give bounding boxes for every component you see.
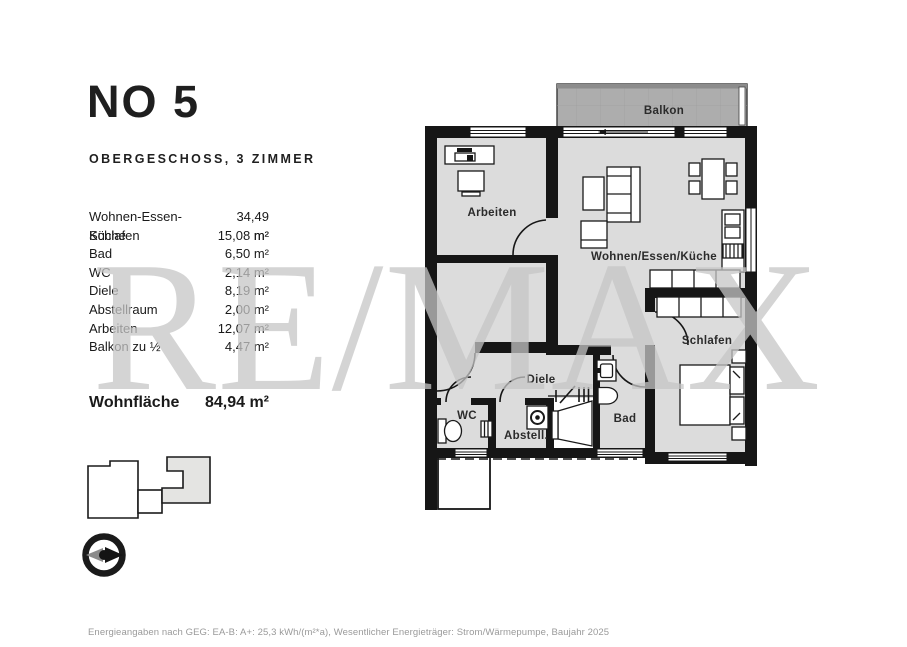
wall-left: [425, 126, 437, 456]
room-name: WC: [89, 264, 111, 283]
label-diele: Diele: [527, 374, 556, 386]
room-name: Schlafen: [89, 227, 140, 246]
wall-arbeiten-bottom: [437, 255, 546, 263]
room-name: Diele: [89, 282, 119, 301]
stairwell-outline: [438, 455, 490, 509]
room-area: 4,47 m²: [225, 338, 269, 357]
radiator-icon: [481, 421, 492, 437]
window-schlafen: [668, 453, 727, 461]
bad-toilet-icon: [598, 388, 618, 405]
room-name: Arbeiten: [89, 320, 137, 339]
wall-arbeiten-lower: [546, 255, 558, 353]
room-area: 2,00 m²: [225, 301, 269, 320]
wall-h5-c: [525, 398, 546, 405]
label-schlafen: Schlafen: [682, 335, 732, 347]
total-value: 84,94 m²: [205, 394, 269, 413]
wall-h5-a: [437, 398, 441, 405]
nightstand-icon: [732, 350, 746, 363]
nightstand-2-icon: [732, 427, 746, 440]
room-name: Balkon zu ½: [89, 338, 161, 357]
window-balcony-2: [684, 127, 727, 137]
label-wc: WC: [457, 410, 477, 422]
room-area: 6,50 m²: [225, 245, 269, 264]
label-abstell: Abstell.: [504, 430, 548, 442]
room-name: Abstellraum: [89, 301, 158, 320]
room-name: Bad: [89, 245, 112, 264]
area-table-row: WC 2,14 m²: [89, 264, 269, 283]
room-area: 15,08 m²: [218, 227, 269, 246]
area-table-row: Schlafen 15,08 m²: [89, 227, 269, 246]
area-table-row: Arbeiten 12,07 m²: [89, 320, 269, 339]
armchair-2-icon: [581, 221, 607, 248]
window-balcony-door: [563, 127, 675, 137]
total-area-row: Wohnfläche 84,94 m²: [89, 394, 269, 413]
desk-icon: [445, 146, 494, 164]
label-arbeiten: Arbeiten: [467, 207, 516, 219]
wall-schlafen-left-a: [645, 288, 655, 312]
wall-schlafen-left-b: [645, 345, 655, 456]
wardrobe-icon: [657, 297, 741, 317]
window-wc: [455, 449, 487, 457]
info-panel: NO 5 OBERGESCHOSS, 3 ZIMMER Wohnen-Essen…: [0, 0, 330, 647]
window-kitchen-right: [746, 208, 756, 272]
floorplan-sheet: NO 5 OBERGESCHOSS, 3 ZIMMER Wohnen-Essen…: [0, 0, 907, 647]
balcony-divider: [739, 87, 745, 125]
area-table-row: Wohnen-Essen-Küche 34,49 m²: [89, 208, 269, 227]
page-title: NO 5: [87, 76, 200, 128]
label-bad: Bad: [614, 413, 637, 425]
page-subtitle: OBERGESCHOSS, 3 ZIMMER: [89, 152, 315, 166]
armchair-icon: [583, 177, 604, 210]
area-table-row: Bad 6,50 m²: [89, 245, 269, 264]
room-area: 2,14 m²: [225, 264, 269, 283]
wc-toilet-icon: [438, 419, 462, 443]
total-label: Wohnfläche: [89, 394, 179, 413]
label-wohnen: Wohnen/Essen/Küche: [591, 251, 717, 263]
bathroom-sink-icon: [597, 360, 616, 381]
wall-diele-top: [475, 342, 546, 353]
area-table-row: Diele 8,19 m²: [89, 282, 269, 301]
label-balkon: Balkon: [644, 105, 684, 117]
area-table-row: Abstellraum 2,00 m²: [89, 301, 269, 320]
washing-machine-icon: [527, 406, 548, 429]
wall-left-lower: [425, 456, 437, 510]
window-arbeiten: [470, 127, 526, 137]
area-table-row: Balkon zu ½ 4,47 m²: [89, 338, 269, 357]
room-area: 8,19 m²: [225, 282, 269, 301]
wall-bad-top: [546, 345, 611, 355]
balcony-edge: [557, 84, 747, 89]
energy-info-footer: Energieangaben nach GEG: EA-B: A+: 25,3 …: [88, 627, 609, 638]
wall-arbeiten-upper: [546, 138, 558, 218]
office-chair-icon: [458, 171, 484, 196]
room-area: 34,49 m²: [218, 208, 269, 227]
room-area-table: Wohnen-Essen-Küche 34,49 m² Schlafen 15,…: [89, 208, 269, 357]
room-name: Wohnen-Essen-Küche: [89, 208, 218, 227]
window-bad: [597, 449, 643, 457]
sofa-icon: [607, 167, 640, 222]
room-area: 12,07 m²: [218, 320, 269, 339]
